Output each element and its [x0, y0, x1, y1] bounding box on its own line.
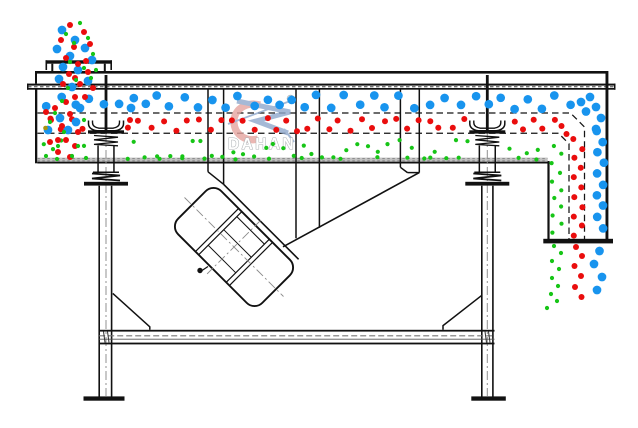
svg-text:DAHAN: DAHAN	[228, 136, 296, 153]
